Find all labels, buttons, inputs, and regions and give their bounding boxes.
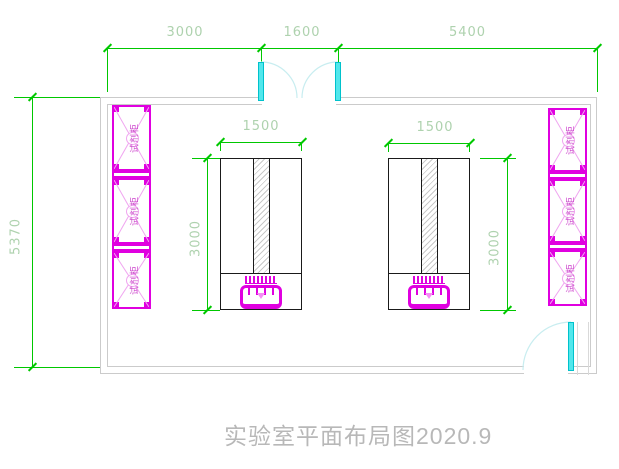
reagent-cabinet: 试剂柜 (112, 105, 151, 171)
bench-service-spine (253, 159, 270, 273)
dim-extension-line (480, 310, 516, 311)
right-cabinet-column: 试剂柜 试剂柜 试剂柜 (548, 108, 587, 306)
reagent-cabinet: 试剂柜 (548, 250, 587, 306)
bench-divider-line (221, 273, 301, 274)
cabinet-separator (548, 172, 587, 179)
sink-icon (240, 285, 282, 309)
bench-height-dimension-line (507, 158, 508, 310)
dim-extension-line (338, 48, 339, 63)
cabinet-label: 试剂柜 (564, 263, 577, 293)
dim-extension-line (14, 97, 100, 98)
dim-label-top-middle: 1600 (262, 25, 342, 40)
door-arc-right (302, 62, 338, 98)
left-dimension-line (32, 97, 33, 368)
sink-tick (272, 288, 274, 295)
inner-wall (107, 104, 591, 367)
sink-tick (440, 288, 442, 295)
cabinet-separator (548, 243, 587, 250)
cabinet-label: 试剂柜 (128, 265, 141, 295)
dim-label-bench-width: 1500 (216, 119, 306, 134)
cabinet-label: 试剂柜 (564, 125, 577, 155)
sink-grate-icon (245, 276, 277, 284)
dim-label-bench-height: 3000 (488, 208, 503, 288)
drawing-title: 实验室平面布局图2020.9 (224, 417, 492, 451)
dim-label-bench-height: 3000 (189, 199, 204, 279)
sink-grate-icon (413, 276, 445, 284)
dim-label-top-left: 3000 (130, 25, 240, 40)
reagent-cabinet: 试剂柜 (112, 178, 151, 244)
floor-plan-canvas: 3000 1600 5400 5370 试剂柜 试剂柜 试剂柜 (0, 0, 619, 469)
sink-tick (416, 288, 418, 295)
dim-extension-line (14, 367, 100, 368)
left-cabinet-column: 试剂柜 试剂柜 试剂柜 (112, 105, 151, 309)
cabinet-label: 试剂柜 (564, 196, 577, 226)
door-arc-left (261, 62, 297, 98)
top-dimension-line (107, 48, 597, 49)
bench-width-dimension-line (220, 142, 302, 143)
cabinet-label: 试剂柜 (128, 123, 141, 153)
sink-icon (408, 285, 450, 309)
cabinet-separator (112, 171, 151, 178)
reagent-cabinet: 试剂柜 (112, 251, 151, 309)
cabinet-label: 试剂柜 (128, 196, 141, 226)
bottom-door-opening (524, 358, 568, 377)
dim-extension-line (480, 158, 516, 159)
door-leaf-bottom (568, 322, 574, 371)
bench-height-dimension-line (207, 158, 208, 310)
bench-service-spine (421, 159, 438, 273)
dim-extension-line (107, 48, 108, 92)
top-door-opening (262, 95, 336, 107)
door-jamb-line (577, 322, 578, 375)
sink-faucet-icon (257, 293, 265, 299)
bench-divider-line (389, 273, 469, 274)
dim-label-top-right: 5400 (410, 25, 525, 40)
dim-label-bench-width: 1500 (390, 120, 480, 135)
door-jamb-line (588, 322, 589, 375)
bench-width-dimension-line (388, 143, 470, 144)
sink-faucet-icon (425, 293, 433, 299)
dim-extension-line (261, 48, 262, 63)
lab-bench-right (388, 158, 470, 310)
sink-tick (248, 288, 250, 295)
dim-extension-line (597, 48, 598, 92)
door-leaf-top-left (258, 62, 264, 101)
lab-bench-left (220, 158, 302, 310)
dim-label-room-height: 5370 (9, 197, 24, 277)
reagent-cabinet: 试剂柜 (548, 108, 587, 172)
reagent-cabinet: 试剂柜 (548, 179, 587, 243)
door-leaf-top-right (335, 62, 341, 101)
cabinet-separator (112, 244, 151, 251)
